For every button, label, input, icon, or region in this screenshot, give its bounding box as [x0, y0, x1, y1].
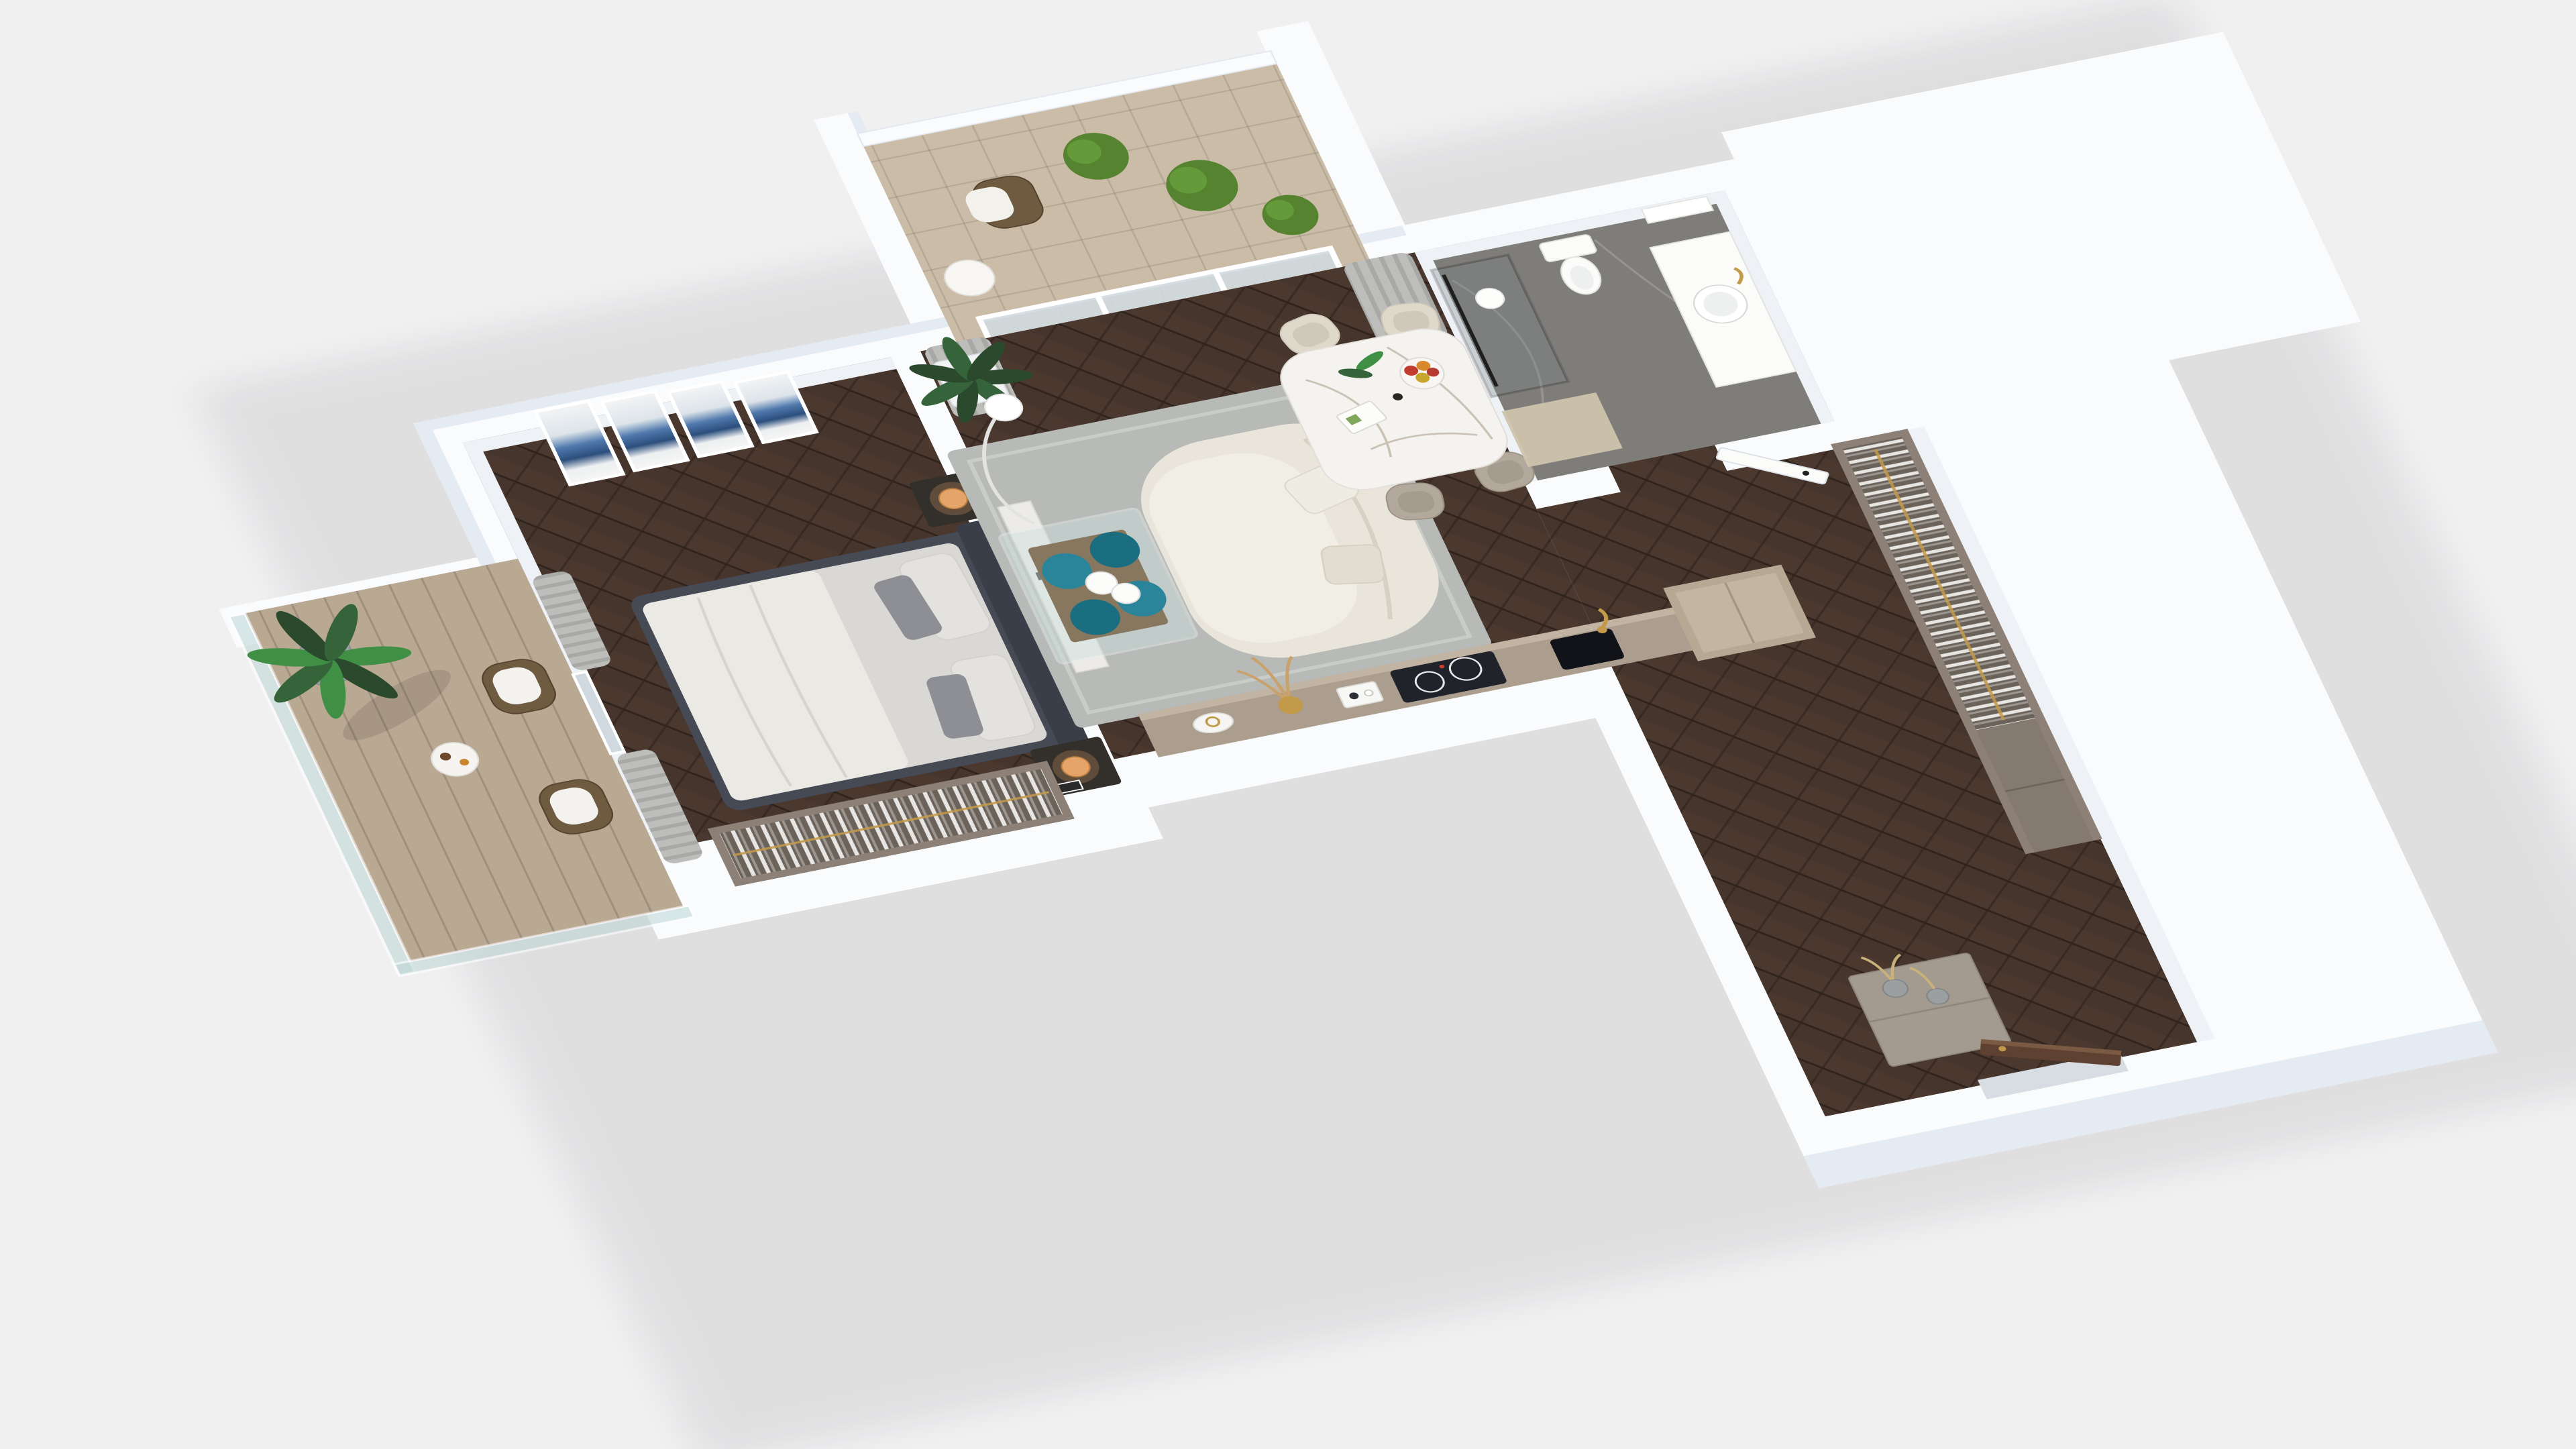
sofa-pillow-2	[1320, 544, 1386, 584]
apartment-3d-render	[0, 0, 2576, 1449]
floorplan-render-stage	[0, 0, 2576, 1449]
